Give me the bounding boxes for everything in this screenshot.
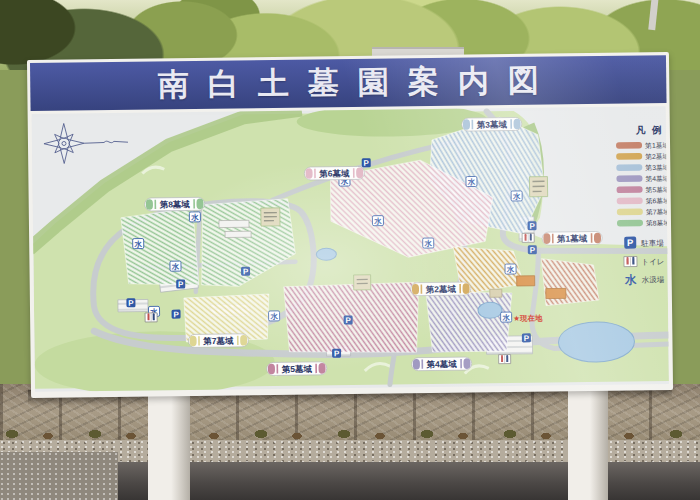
zone-4-area: [426, 291, 513, 352]
svg-text:第1墓域: 第1墓域: [556, 233, 588, 243]
svg-text:第4墓域: 第4墓域: [426, 359, 458, 369]
zone-8-label: 第8墓域: [145, 197, 205, 211]
water-icon: 水: [423, 239, 432, 248]
map-panel: 水 水 水 水 水 水 水 水 水 水 水 水 P P P: [32, 106, 669, 392]
svg-text:第6墓域: 第6墓域: [318, 168, 350, 178]
sign-title: 南白土墓園案内図: [139, 59, 558, 106]
parking-icon: P: [364, 159, 370, 168]
zone-7-label: 第7墓域: [188, 334, 248, 348]
svg-text:水汲場: 水汲場: [641, 275, 665, 284]
tiny-pond: [316, 248, 336, 260]
zone-3-label: 第3墓域: [462, 117, 522, 131]
water-icon: 水: [133, 240, 142, 249]
zone-2-label: 第2墓域: [411, 282, 471, 296]
zone-5-label: 第5墓域: [267, 362, 327, 376]
current-location-marker: ★現在地: [513, 314, 543, 323]
water-icon: 水: [171, 262, 180, 271]
parking-icon: P: [627, 237, 634, 248]
svg-text:第6墓域: 第6墓域: [646, 197, 669, 204]
svg-text:第8墓域: 第8墓域: [646, 219, 669, 226]
parking-icon: P: [524, 334, 530, 343]
cemetery-map: 水 水 水 水 水 水 水 水 水 水 水 水 P P P: [32, 106, 669, 392]
water-icon: 水: [373, 217, 382, 226]
svg-text:第3墓域: 第3墓域: [476, 119, 508, 129]
svg-text:第1墓域: 第1墓域: [645, 142, 669, 149]
water-icon: 水: [501, 313, 510, 322]
large-pond: [558, 322, 634, 363]
legend-parking: P 駐車場: [624, 236, 664, 248]
zone-6-label: 第6墓域: [304, 166, 364, 180]
svg-text:第8墓域: 第8墓域: [159, 199, 191, 209]
parking-icon: P: [529, 222, 535, 231]
svg-text:トイレ: トイレ: [641, 257, 664, 266]
parking-icon: P: [530, 246, 536, 255]
svg-text:第4墓域: 第4墓域: [645, 175, 669, 182]
svg-text:第2墓域: 第2墓域: [645, 153, 669, 160]
sign-left-post: [148, 380, 190, 500]
svg-text:駐車場: 駐車場: [640, 239, 664, 248]
small-pond: [478, 302, 502, 318]
svg-text:第5墓域: 第5墓域: [281, 364, 313, 374]
parking-icon: P: [334, 349, 340, 358]
svg-text:第7墓域: 第7墓域: [646, 208, 669, 215]
parking-icon: P: [178, 280, 184, 289]
svg-text:第5墓域: 第5墓域: [646, 186, 669, 193]
toilet-icon: [624, 256, 637, 266]
svg-text:第3墓域: 第3墓域: [645, 164, 669, 171]
water-icon: 水: [269, 312, 278, 321]
sign-right-post: [568, 380, 608, 500]
parking-icon: P: [243, 267, 249, 276]
svg-text:第7墓域: 第7墓域: [202, 336, 234, 346]
parking-icon: P: [173, 310, 179, 319]
sign-title-banner: 南白土墓園案内図: [30, 55, 667, 111]
legend-toilet: トイレ: [624, 256, 665, 266]
parking-icon: P: [128, 299, 134, 308]
zone-1-label: 第1墓域: [542, 231, 602, 245]
svg-text:第2墓域: 第2墓域: [425, 284, 457, 294]
water-icon: 水: [190, 213, 199, 222]
water-icon: 水: [624, 273, 637, 285]
water-icon: 水: [506, 265, 515, 274]
water-icon: 水: [467, 177, 476, 186]
gravel-corner: [0, 452, 118, 500]
water-icon: 水: [512, 192, 521, 201]
zone-4-label: 第4墓域: [412, 357, 472, 371]
legend-title: 凡 例: [635, 124, 664, 135]
legend-water: 水 水汲場: [624, 273, 665, 285]
photo-of-cemetery-map-sign: { "sign": { "title": "南白土墓園案内図" }, "zone…: [0, 0, 700, 500]
cemetery-guide-sign: 南白土墓園案内図: [27, 52, 673, 398]
parking-icon: P: [345, 316, 351, 325]
